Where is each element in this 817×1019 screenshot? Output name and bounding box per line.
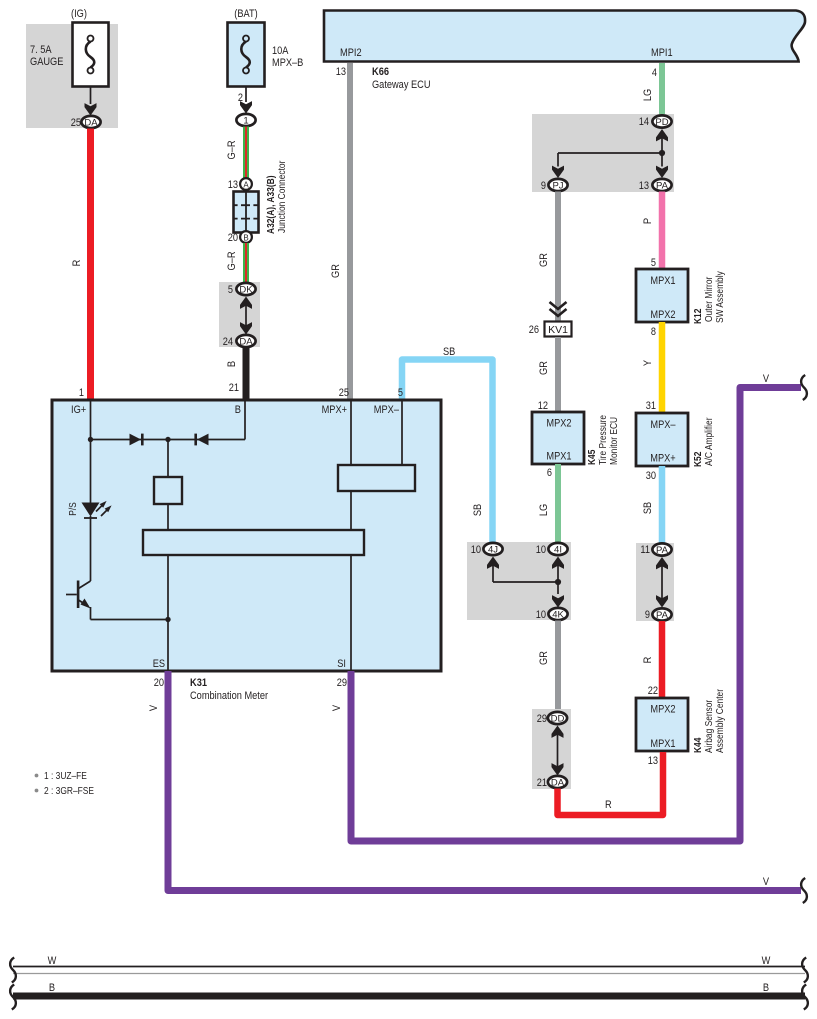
svg-text:MPX2: MPX2 — [546, 418, 571, 430]
svg-text:G–R: G–R — [226, 251, 238, 270]
svg-text:2 : 3GR–FSE: 2 : 3GR–FSE — [44, 786, 94, 797]
svg-text:GAUGE: GAUGE — [30, 56, 63, 68]
svg-text:V: V — [148, 704, 160, 711]
svg-text:DD: DD — [551, 714, 565, 725]
svg-text:21: 21 — [537, 777, 547, 789]
svg-text:29: 29 — [337, 677, 347, 689]
svg-text:25: 25 — [71, 117, 81, 129]
svg-text:SB: SB — [642, 502, 654, 514]
svg-text:P/S: P/S — [68, 502, 79, 516]
svg-text:MPX1: MPX1 — [650, 275, 675, 287]
svg-text:10: 10 — [471, 544, 481, 556]
svg-text:DK: DK — [239, 285, 253, 296]
svg-text:Combination Meter: Combination Meter — [190, 690, 268, 702]
svg-text:13: 13 — [648, 755, 658, 767]
svg-text:V: V — [331, 704, 343, 711]
svg-text:MPX+: MPX+ — [650, 453, 675, 465]
svg-text:R: R — [605, 799, 612, 811]
svg-text:Junction Connector: Junction Connector — [277, 160, 288, 233]
svg-text:V: V — [763, 373, 770, 385]
svg-text:PD: PD — [655, 117, 668, 128]
svg-text:7. 5A: 7. 5A — [30, 44, 52, 56]
svg-text:DA: DA — [84, 118, 98, 129]
svg-text:Assembly Center: Assembly Center — [715, 688, 726, 753]
svg-text:13: 13 — [228, 179, 238, 191]
svg-text:30: 30 — [646, 470, 656, 482]
svg-text:W: W — [48, 955, 57, 967]
svg-text:PA: PA — [656, 610, 669, 621]
svg-text:A32(A), A33(B): A32(A), A33(B) — [266, 176, 277, 235]
svg-text:K52: K52 — [693, 451, 704, 467]
svg-text:MPX+: MPX+ — [322, 404, 347, 416]
svg-text:8: 8 — [651, 326, 656, 338]
svg-text:MPI1: MPI1 — [651, 47, 673, 59]
svg-text:11: 11 — [640, 544, 650, 556]
svg-text:DA: DA — [239, 337, 253, 348]
svg-text:(BAT): (BAT) — [234, 8, 257, 20]
svg-text:10: 10 — [536, 544, 546, 556]
svg-text:22: 22 — [648, 685, 658, 697]
svg-text:GR: GR — [330, 264, 342, 278]
svg-text:1: 1 — [79, 387, 84, 399]
svg-text:9: 9 — [645, 609, 650, 621]
svg-text:MPX2: MPX2 — [650, 309, 675, 321]
svg-text:KV1: KV1 — [548, 324, 568, 336]
svg-text:PA: PA — [656, 181, 669, 192]
svg-text:GR: GR — [538, 651, 550, 665]
svg-text:LG: LG — [642, 89, 654, 101]
svg-text:24: 24 — [223, 336, 233, 348]
svg-text:LG: LG — [538, 504, 550, 516]
svg-text:Gateway ECU: Gateway ECU — [372, 79, 431, 91]
svg-text:PJ: PJ — [552, 181, 563, 192]
svg-text:P: P — [642, 218, 654, 224]
svg-text:6: 6 — [547, 467, 552, 479]
svg-text:G–R: G–R — [226, 140, 238, 159]
svg-text:MPX1: MPX1 — [650, 738, 675, 750]
svg-text:W: W — [762, 955, 771, 967]
svg-text:5: 5 — [398, 387, 403, 399]
svg-text:26: 26 — [529, 324, 539, 336]
svg-text:A: A — [243, 181, 249, 190]
svg-text:1 : 3UZ–FE: 1 : 3UZ–FE — [44, 771, 87, 782]
svg-text:2: 2 — [238, 92, 243, 104]
svg-text:Y: Y — [642, 359, 654, 366]
svg-text:Monitor ECU: Monitor ECU — [609, 417, 620, 465]
svg-text:12: 12 — [538, 400, 548, 412]
svg-text:21: 21 — [229, 382, 239, 394]
svg-text:1: 1 — [243, 116, 248, 127]
svg-text:Tire Pressure: Tire Pressure — [598, 415, 609, 465]
svg-text:13: 13 — [336, 66, 346, 78]
svg-text:31: 31 — [646, 400, 656, 412]
svg-text:GR: GR — [538, 253, 550, 267]
svg-text:PA: PA — [656, 545, 669, 556]
svg-text:4I: 4I — [554, 545, 562, 556]
svg-text:K44: K44 — [693, 737, 704, 753]
svg-text:MPX–: MPX– — [374, 404, 400, 416]
svg-text:DA: DA — [551, 778, 565, 789]
svg-text:5: 5 — [228, 284, 233, 296]
svg-text:4K: 4K — [552, 610, 564, 621]
svg-text:IG+: IG+ — [71, 404, 86, 416]
svg-text:B: B — [235, 404, 241, 416]
svg-text:SW Assembly: SW Assembly — [715, 271, 726, 323]
svg-text:MPI2: MPI2 — [340, 47, 362, 59]
svg-text:14: 14 — [639, 116, 649, 128]
svg-text:B: B — [226, 361, 238, 367]
svg-text:SB: SB — [443, 346, 455, 358]
svg-text:B: B — [243, 234, 248, 243]
svg-text:20: 20 — [228, 232, 238, 244]
svg-text:ES: ES — [153, 658, 165, 670]
svg-text:R: R — [642, 657, 654, 664]
svg-text:20: 20 — [154, 677, 164, 689]
svg-text:MPX2: MPX2 — [650, 704, 675, 716]
svg-text:SI: SI — [337, 658, 346, 670]
svg-text:(IG): (IG) — [71, 8, 87, 20]
svg-text:MPX1: MPX1 — [546, 451, 571, 463]
svg-text:R: R — [71, 260, 83, 267]
svg-text:K45: K45 — [587, 449, 598, 465]
svg-text:B: B — [763, 982, 769, 994]
svg-text:5: 5 — [651, 257, 656, 269]
svg-text:B: B — [49, 982, 55, 994]
svg-text:A/C Amplifier: A/C Amplifier — [704, 417, 715, 466]
svg-text:4: 4 — [652, 67, 657, 79]
svg-text:MPX–B: MPX–B — [272, 57, 303, 69]
svg-text:13: 13 — [639, 180, 649, 192]
svg-text:4J: 4J — [488, 545, 498, 556]
svg-text:10: 10 — [536, 609, 546, 621]
svg-text:K66: K66 — [372, 66, 389, 78]
svg-text:GR: GR — [538, 361, 550, 375]
svg-text:Outer Mirror: Outer Mirror — [704, 276, 715, 322]
svg-text:25: 25 — [339, 387, 349, 399]
svg-text:29: 29 — [537, 713, 547, 725]
svg-text:10A: 10A — [272, 45, 289, 57]
svg-text:MPX–: MPX– — [650, 419, 676, 431]
svg-text:Airbag Sensor: Airbag Sensor — [704, 699, 715, 753]
svg-text:SB: SB — [472, 504, 484, 516]
svg-text:K31: K31 — [190, 677, 207, 689]
svg-text:9: 9 — [541, 180, 546, 192]
svg-text:V: V — [763, 876, 770, 888]
svg-text:K12: K12 — [693, 308, 704, 324]
